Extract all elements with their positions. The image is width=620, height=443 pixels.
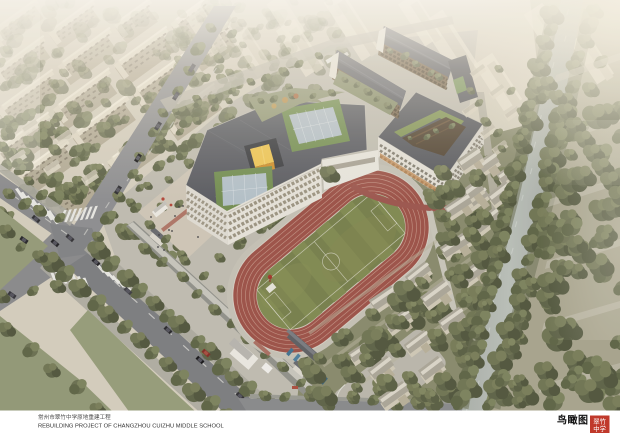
svg-text:REBUILDING PROJECT OF CHANGZHO: REBUILDING PROJECT OF CHANGZHOU CUIZHU M… [38,424,225,430]
svg-text:常州市翠竹中学原地重建工程: 常州市翠竹中学原地重建工程 [38,413,111,421]
svg-text:鸟瞰图: 鸟瞰图 [557,414,589,427]
svg-text:翠竹: 翠竹 [593,417,606,426]
svg-text:中学: 中学 [593,424,606,433]
